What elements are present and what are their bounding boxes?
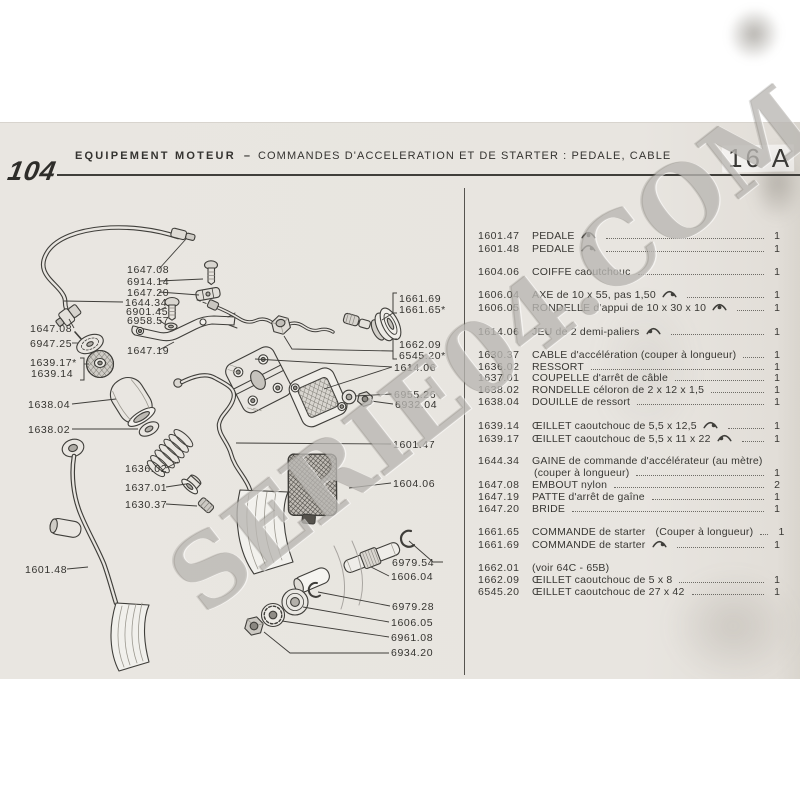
pedal-rubber-cover-drawing (283, 451, 342, 526)
part-row: 1639.17ŒILLET caoutchouc de 5,5 x 11 x 2… (478, 433, 780, 446)
grommet-1639-drawing (87, 351, 114, 378)
part-qty: 1 (769, 290, 780, 302)
cable-wire (75, 332, 82, 340)
diagram-label: 6947.25 (30, 338, 72, 350)
part-ref: 1638.04 (478, 397, 524, 409)
diagram-label: 1647.08 (30, 323, 72, 335)
linkage-sketch-lines (334, 541, 363, 609)
part-row: 6545.20ŒILLET caoutchouc de 27 x 421 (478, 587, 780, 599)
nut-6932-drawing (357, 390, 373, 407)
part-qty: 1 (769, 575, 780, 587)
diagram-label: 1614.06 (394, 362, 436, 374)
diagram-label: 6961.08 (391, 632, 433, 644)
part-ref: 1606.05 (478, 303, 524, 315)
diagram-label: 1639.14 (31, 368, 73, 380)
part-ref: 1601.48 (478, 244, 524, 256)
diagram-label: 1637.01 (125, 482, 167, 494)
dotted-leader (692, 594, 764, 595)
diagram-label: 1606.04 (391, 571, 433, 583)
dotted-leader (638, 274, 764, 275)
part-row: 1614.06JEU de 2 demi-paliers1 (478, 326, 780, 339)
diagram-label: 1601.48 (25, 564, 67, 576)
dotted-leader (679, 582, 764, 583)
steering-orientation-icon (716, 433, 733, 442)
cable-end-1630-drawing (197, 497, 214, 514)
diagram-label: 1661.65* (399, 304, 446, 316)
part-row: 1647.19PATTE d'arrêt de gaîne1 (478, 492, 780, 504)
parts-group: 1639.14ŒILLET caoutchouc de 5,5 x 12,511… (478, 420, 780, 446)
dotted-leader (636, 475, 764, 476)
part-qty: 1 (769, 540, 780, 552)
dotted-leader (742, 441, 764, 442)
part-qty: 1 (769, 231, 780, 243)
dotted-leader (606, 238, 764, 239)
diagram-labels: 1647.086914.141647.201644.346901.456958.… (25, 239, 446, 659)
part-ref: 1604.06 (478, 267, 524, 279)
part-qty: 1 (769, 350, 780, 362)
part-qty: 2 (769, 480, 780, 492)
parts-group: 1644.34GAINE de commande d'accélérateur … (478, 456, 780, 515)
part-desc: PEDALE (532, 244, 575, 256)
dotted-leader (675, 380, 764, 381)
part-qty: 1 (769, 492, 780, 504)
part-qty: 1 (769, 327, 780, 339)
part-desc: COIFFE caoutchouc (532, 267, 631, 279)
exploded-diagram: 1647.086914.141647.201644.346901.456958.… (0, 123, 464, 679)
steering-orientation-icon (580, 230, 597, 239)
part-row: 1606.04AXE de 10 x 55, pas 1,501 (478, 289, 780, 302)
nut-1662-drawing (270, 314, 291, 337)
leader-line (159, 239, 186, 269)
catalog-page: 104 EQUIPEMENT MOTEUR–COMMANDES D'ACCELE… (0, 0, 800, 800)
part-desc: (voir 64C - 65B) (532, 563, 609, 575)
diagram-label: 6932.04 (395, 399, 437, 411)
parts-group: 1601.47PEDALE11601.48PEDALE1 (478, 230, 780, 256)
page-number: 16 A (728, 143, 792, 174)
part-desc: AXE de 10 x 55, pas 1,50 (532, 290, 656, 302)
leader-line (371, 567, 389, 576)
part-row: 1644.34GAINE de commande d'accélérateur … (478, 456, 780, 468)
part-row: 1604.06COIFFE caoutchouc1 (478, 267, 780, 279)
diagram-label: 1647.19 (127, 345, 169, 357)
part-desc: ŒILLET caoutchouc de 5 x 8 (532, 575, 672, 587)
leader-line (282, 621, 389, 637)
diagram-label: 1601.47 (393, 439, 435, 451)
part-ref: 1647.08 (478, 480, 524, 492)
parts-group: 1662.01(voir 64C - 65B)1662.09ŒILLET cao… (478, 563, 780, 598)
leader-line (371, 401, 393, 404)
part-row: 1647.20BRIDE1 (478, 504, 780, 516)
parts-group: 1604.06COIFFE caoutchouc1 (478, 267, 780, 279)
part-qty: 1 (769, 587, 780, 599)
column-divider (464, 188, 465, 675)
parts-group: 1614.06JEU de 2 demi-paliers1 (478, 326, 780, 339)
part-desc: JEU de 2 demi-paliers (532, 327, 640, 339)
parts-group: 1630.37CABLE d'accélération (couper à lo… (478, 350, 780, 409)
bride-1647-20-drawing (195, 287, 220, 301)
part-ref: 1647.19 (478, 492, 524, 504)
cover-plate-drawing (286, 365, 350, 430)
part-desc: ŒILLET caoutchouc de 5,5 x 11 x 22 (532, 434, 711, 446)
dotted-leader (572, 511, 764, 512)
part-desc: CABLE d'accélération (couper à longueur) (532, 350, 736, 362)
part-desc: RONDELLE d'appui de 10 x 30 x 10 (532, 303, 706, 315)
part-qty: 1 (769, 397, 780, 409)
dotted-leader (677, 547, 765, 548)
diagram-label: 1647.08 (127, 264, 169, 276)
dotted-leader (671, 334, 765, 335)
diagram-label: 6979.54 (392, 557, 434, 569)
part-row: 1606.05RONDELLE d'appui de 10 x 30 x 101 (478, 302, 780, 315)
diagram-label: 1604.06 (393, 478, 435, 490)
bearing-block-drawing (223, 344, 296, 418)
leader-line (264, 632, 389, 653)
part-ref: 1614.06 (478, 327, 524, 339)
label-bracket (80, 358, 84, 380)
dotted-leader (591, 369, 764, 370)
part-qty: 1 (769, 303, 780, 315)
bottom-margin (0, 679, 800, 800)
diagram-label: 6934.20 (391, 647, 433, 659)
leader-line (166, 462, 178, 468)
diagram-label: 6958.57 (127, 315, 169, 327)
part-row: 1630.37CABLE d'accélération (couper à lo… (478, 350, 780, 362)
washer-6955-drawing (342, 390, 356, 404)
dotted-leader (652, 499, 764, 500)
leader-line (64, 301, 123, 302)
steering-orientation-icon (580, 243, 597, 252)
dotted-leader (728, 428, 764, 429)
part-row: 1661.65COMMANDE de starter(Couper à long… (478, 526, 780, 539)
part-ref: 1662.09 (478, 575, 524, 587)
part-row: 1601.48PEDALE1 (478, 243, 780, 256)
part-row: 1638.04DOUILLE de ressort1 (478, 397, 780, 409)
part-row: 1639.14ŒILLET caoutchouc de 5,5 x 12,51 (478, 420, 780, 433)
leader-line (236, 443, 391, 444)
part-ref: 1639.14 (478, 421, 524, 433)
part-ref: 6545.20 (478, 587, 524, 599)
screw-6914-drawing (205, 261, 218, 285)
dotted-leader (737, 310, 764, 311)
part-row-continuation: (couper à longueur)1 (478, 468, 780, 480)
circlip-6979-54-drawing (401, 531, 414, 547)
leader-line (303, 607, 389, 622)
leader-line (67, 567, 88, 569)
part-ref: 1647.20 (478, 504, 524, 516)
top-margin (0, 0, 800, 122)
label-bracket (393, 339, 397, 359)
diagram-label: 1636.02 (125, 463, 167, 475)
steering-orientation-icon (661, 289, 678, 298)
part-ref: 1661.69 (478, 540, 524, 552)
leader-line (318, 592, 390, 606)
part-ref: 1661.65 (478, 527, 524, 539)
washer-1606-05-drawing (282, 589, 308, 615)
part-ref: 1639.17 (478, 434, 524, 446)
leader-line (284, 336, 393, 351)
cable-embout-top (170, 228, 195, 243)
part-qty: 1 (769, 267, 780, 279)
part-desc: ŒILLET caoutchouc de 5,5 x 12,5 (532, 421, 697, 433)
part-desc-note: (Couper à longueur) (656, 527, 754, 539)
diagram-label: 1630.37 (125, 499, 167, 511)
steering-orientation-icon (702, 420, 719, 429)
diagram-label: 1606.05 (391, 617, 433, 629)
part-ref: 1662.01 (478, 563, 524, 575)
part-ref: 1606.04 (478, 290, 524, 302)
dotted-leader (637, 404, 764, 405)
part-row: 1647.08EMBOUT nylon2 (478, 480, 780, 492)
steering-orientation-icon (711, 302, 728, 311)
part-desc: PEDALE (532, 231, 575, 243)
leader-line (166, 504, 197, 506)
part-row: 1601.47PEDALE1 (478, 230, 780, 243)
diagram-label: 6545.20* (399, 350, 446, 362)
part-qty: 1 (773, 527, 784, 539)
parts-group: 1606.04AXE de 10 x 55, pas 1,5011606.05R… (478, 289, 780, 315)
steering-orientation-icon (645, 326, 662, 335)
label-bracket (393, 293, 397, 313)
part-row: 1661.69COMMANDE de starter1 (478, 539, 780, 552)
dotted-leader (606, 251, 764, 252)
part-desc: EMBOUT nylon (532, 480, 607, 492)
part-qty: 1 (769, 434, 780, 446)
dotted-leader (760, 534, 768, 535)
part-desc: COMMANDE de starter (532, 540, 646, 552)
diagram-label: 1638.02 (28, 424, 70, 436)
part-ref: 1630.37 (478, 350, 524, 362)
coupelle-1637-drawing (180, 471, 205, 496)
part-desc: ŒILLET caoutchouc de 27 x 42 (532, 587, 685, 599)
part-ref: 1601.47 (478, 231, 524, 243)
part-row: 1662.09ŒILLET caoutchouc de 5 x 81 (478, 575, 780, 587)
scan-area: 104 EQUIPEMENT MOTEUR–COMMANDES D'ACCELE… (0, 122, 800, 680)
part-desc: DOUILLE de ressort (532, 397, 630, 409)
part-qty: 1 (769, 421, 780, 433)
parts-group: 1661.65COMMANDE de starter(Couper à long… (478, 526, 780, 552)
part-desc: COMMANDE de starter (532, 527, 646, 539)
diagram-label: 6979.28 (392, 601, 434, 613)
steering-orientation-icon (651, 539, 668, 548)
dotted-leader (711, 392, 764, 393)
star-washer-6961-drawing (262, 604, 285, 627)
part-desc: BRIDE (532, 504, 565, 516)
leader-line (166, 484, 186, 487)
diagram-label: 1638.04 (28, 399, 70, 411)
leader-line (72, 399, 116, 404)
part-ref: 1644.34 (478, 456, 524, 468)
part-row: 1662.01(voir 64C - 65B) (478, 563, 780, 575)
dotted-leader (743, 357, 764, 358)
leader-line (349, 483, 391, 488)
dotted-leader (614, 487, 764, 488)
dotted-leader (687, 297, 764, 298)
part-qty: 1 (769, 244, 780, 256)
parts-list: 1601.47PEDALE11601.48PEDALE11604.06COIFF… (478, 230, 780, 609)
part-qty: 1 (769, 504, 780, 516)
part-desc: PATTE d'arrêt de gaîne (532, 492, 645, 504)
